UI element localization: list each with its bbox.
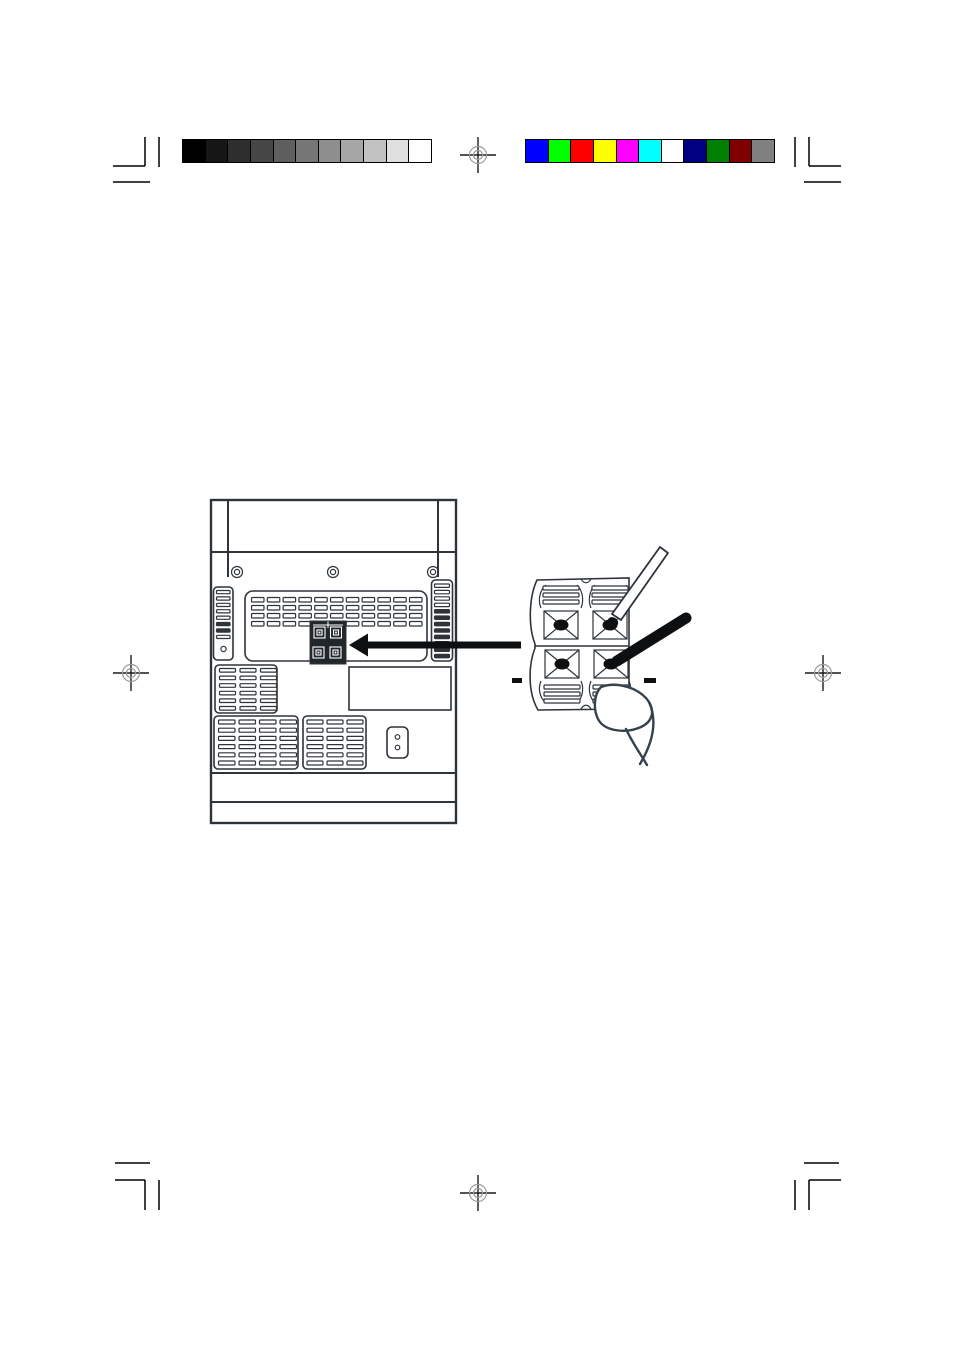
vent-slat [347, 745, 363, 749]
vent-slat [544, 699, 580, 703]
vent-slat [267, 606, 280, 611]
vent-slat [260, 720, 277, 724]
vent-slat [220, 699, 236, 703]
vent-slat [410, 606, 423, 611]
vent-slat [260, 761, 277, 765]
vent-slat [435, 635, 450, 638]
minus-mark-right [644, 678, 656, 683]
vent-slat [261, 669, 277, 673]
vent-slat [219, 728, 236, 732]
terminal-closeup-illustration [512, 547, 686, 765]
vent-slat [240, 669, 256, 673]
vent-slat [347, 761, 363, 765]
vent-slat [299, 614, 312, 619]
vent-slat [267, 598, 280, 603]
vent-slat [435, 584, 450, 587]
vent-slat [220, 684, 236, 688]
vent-slat [307, 753, 323, 757]
vent-slat [331, 614, 344, 619]
vent-slat [239, 745, 256, 749]
vent-slat [394, 622, 407, 627]
push-terminal [545, 650, 579, 678]
vent-slat [283, 614, 296, 619]
vent-slat [261, 699, 277, 703]
vent-slat [307, 761, 323, 765]
vent-slat [220, 691, 236, 695]
vent-block-lower-mid [303, 716, 366, 769]
vent-slat [394, 598, 407, 603]
vent-slat [280, 753, 297, 757]
vent-block-upper-left [215, 665, 277, 713]
vent-slat [219, 753, 236, 757]
vent-slat [219, 745, 236, 749]
vent-slat [261, 707, 277, 711]
vent-slat [435, 654, 450, 657]
vent-slat [260, 745, 277, 749]
vent-slat [307, 745, 323, 749]
vent-slat [217, 629, 231, 632]
vent-slat [347, 753, 363, 757]
vent-slat [543, 586, 579, 590]
vent-slat [240, 684, 256, 688]
thin-speaker-wire [612, 547, 668, 620]
vent-slat [346, 614, 359, 619]
vent-slat [346, 622, 359, 627]
vent-slat [220, 707, 236, 711]
vent-slat [252, 606, 265, 611]
registration-mark-left [113, 655, 149, 691]
speaker-terminal-block [310, 621, 346, 664]
registration-mark-right [805, 655, 841, 691]
vent-slat [252, 614, 265, 619]
vent-slat [327, 761, 343, 765]
vent-slat [280, 745, 297, 749]
vent-slat [299, 598, 312, 603]
back-panel-illustration [211, 500, 456, 823]
minus-mark-left [512, 678, 522, 683]
vent-slat [252, 622, 265, 627]
corner-mark-bottom-right [795, 1163, 841, 1210]
vent-slat [240, 691, 256, 695]
corner-mark-top-right [795, 137, 841, 182]
vent-slat [217, 623, 231, 626]
vent-slat [592, 593, 628, 597]
vent-slat [280, 736, 297, 740]
vent-slat [331, 606, 344, 611]
vent-slat [240, 676, 256, 680]
vent-slat [435, 590, 450, 593]
vent-slat [252, 598, 265, 603]
vent-slat [217, 603, 231, 606]
vent-slat [410, 622, 423, 627]
vent-block-lower-left [214, 716, 298, 769]
vent-slat [362, 622, 375, 627]
vent-slat [435, 648, 450, 651]
vent-slat [410, 598, 423, 603]
vent-slat [544, 685, 580, 689]
vent-slat [435, 622, 450, 625]
vent-slat [394, 606, 407, 611]
vent-slat [260, 736, 277, 740]
vent-slat [240, 707, 256, 711]
vent-slat [299, 606, 312, 611]
vent-slat [378, 614, 391, 619]
vent-slat [362, 606, 375, 611]
ac-inlet [387, 727, 408, 758]
vent-slat [219, 761, 236, 765]
vent-slat [261, 691, 277, 695]
vent-slat [378, 606, 391, 611]
vent-slat [315, 598, 328, 603]
push-terminal [544, 611, 578, 639]
diagram-svg [0, 0, 954, 1350]
vent-slat [267, 614, 280, 619]
vent-slat [592, 586, 628, 590]
vent-slat [217, 597, 231, 600]
vent-slat [378, 598, 391, 603]
vent-slat [239, 720, 256, 724]
vent-slat [327, 720, 343, 724]
vent-slat [346, 598, 359, 603]
vent-slat [544, 692, 580, 696]
vent-slat [217, 616, 231, 619]
vent-slat [239, 761, 256, 765]
vent-slat [315, 614, 328, 619]
vent-slat [307, 728, 323, 732]
vent-slat [347, 736, 363, 740]
registration-mark-bottom [460, 1175, 496, 1211]
vent-slat [283, 606, 296, 611]
vent-slat [239, 736, 256, 740]
vent-slat [261, 676, 277, 680]
vent-slat [435, 616, 450, 619]
vent-slat [217, 635, 231, 638]
manual-page [0, 0, 954, 1350]
vent-slat [220, 669, 236, 673]
vent-slat [435, 629, 450, 632]
vent-slat [315, 606, 328, 611]
vent-slat [394, 614, 407, 619]
vent-slat [219, 720, 236, 724]
vent-slat [239, 728, 256, 732]
right-vent-column [432, 580, 453, 661]
vent-slat [220, 676, 236, 680]
vent-slat [217, 591, 231, 594]
vent-slat [327, 728, 343, 732]
vent-slat [435, 603, 450, 606]
vent-slat [307, 736, 323, 740]
corner-mark-bottom-left [115, 1163, 159, 1210]
vent-slat [327, 753, 343, 757]
vent-slat [362, 598, 375, 603]
corner-mark-top-left [113, 137, 159, 182]
vent-slat [240, 699, 256, 703]
vent-slat [435, 610, 450, 613]
vent-slat [543, 593, 579, 597]
finger-illustration [595, 685, 653, 765]
vent-slat [283, 622, 296, 627]
left-vent-column [214, 587, 234, 660]
vent-slat [410, 614, 423, 619]
vent-slat [239, 753, 256, 757]
vent-slat [362, 614, 375, 619]
vent-slat [347, 728, 363, 732]
vent-slat [267, 622, 280, 627]
vent-slat [378, 622, 391, 627]
vent-slat [331, 598, 344, 603]
vent-slat [261, 684, 277, 688]
vent-slat [280, 761, 297, 765]
registration-mark-top [460, 137, 496, 173]
vent-slat [543, 600, 579, 604]
vent-slat [327, 745, 343, 749]
lever-slats-top-left [543, 586, 579, 604]
label-plate [349, 667, 451, 710]
vent-slat [307, 720, 323, 724]
vent-slat [217, 610, 231, 613]
vent-slat [280, 720, 297, 724]
vent-slat [280, 728, 297, 732]
vent-slat [260, 753, 277, 757]
vent-slat [283, 598, 296, 603]
vent-slat [260, 728, 277, 732]
vent-slat [327, 736, 343, 740]
vent-slat [346, 606, 359, 611]
vent-slat [347, 720, 363, 724]
vent-slat [219, 736, 236, 740]
vent-slat [435, 597, 450, 600]
lever-slats-bottom-left [544, 685, 580, 703]
